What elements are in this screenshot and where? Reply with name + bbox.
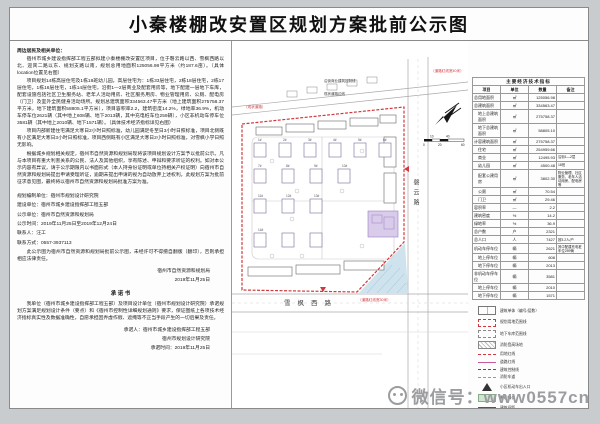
legend-item: 建筑控制线 bbox=[478, 368, 585, 373]
contact-info-line: 公示时间：2019年11月25日至2019年12月24日 bbox=[17, 222, 224, 229]
notice-paragraph-location: 宿州市城乡建设指挥部工程五部拟建小秦楼棚改安置区项目，位于磬云路以西、雪枫西路以… bbox=[17, 57, 224, 78]
building-number-labels: 1#2#3#4#5#6#7#8#9#10#11#12#13#14# bbox=[258, 138, 387, 232]
issuer-name: 宿州市自然资源和规划局 bbox=[17, 269, 210, 276]
indicator-row: 总用地面积㎡125056.98 bbox=[473, 94, 585, 102]
dash-legend-symbol bbox=[478, 377, 496, 378]
indicator-row: 绿地率%36.9 bbox=[473, 220, 585, 228]
commitment-letter: 承 诺 书 我单位（宿州市城乡建设指挥部工程五部）及项目设计单位（宿州市规划设计… bbox=[17, 291, 224, 353]
indicator-row: 门卫㎡29.46 bbox=[473, 196, 585, 204]
indicator-row: 地下停车位辆1571 bbox=[473, 292, 585, 300]
commitment-signature-block: 承诺人：宿州市城乡建设指挥部工程五部 宿州市规划设计研究院 承诺时间：2019年… bbox=[17, 328, 224, 353]
notice-text-column: 周边居民及相关单位： 宿州市城乡建设指挥部工程五部拟建小秦楼棚改安置区项目，位于… bbox=[10, 41, 232, 408]
indicator-row: 地上停车位辆608 bbox=[473, 254, 585, 262]
commitment-signer-2: 宿州市规划设计研究院 bbox=[17, 337, 210, 344]
indicator-row: 容积率—2.2 bbox=[473, 204, 585, 212]
red-dash-legend-symbol bbox=[478, 354, 496, 355]
road-edge-note: 现状道路边线 bbox=[324, 92, 345, 96]
notice-disclaimer: 此公示图为宿州市自然资源和规划局批前公示图，未经许可不得擅自翻版（翻印），否则承… bbox=[17, 250, 224, 264]
hatch-rect-legend-symbol bbox=[478, 341, 496, 349]
svg-text:20: 20 bbox=[438, 143, 442, 147]
contact-info-line: 联系方式：0557-3937113 bbox=[17, 241, 224, 248]
wechat-badge-icon bbox=[388, 386, 407, 405]
legend-item: 用地红线 bbox=[478, 352, 585, 357]
indicator-row: 商业㎡12495.93沿街1—2层 bbox=[473, 154, 585, 162]
issuer-signature-block: 宿州市自然资源和规划局 2019年11月25日 bbox=[17, 269, 224, 285]
svg-text:60: 60 bbox=[461, 143, 465, 147]
svg-text:10#: 10# bbox=[342, 164, 348, 168]
road-name-right: 磬云路 bbox=[411, 179, 420, 209]
svg-text:1#: 1# bbox=[258, 138, 262, 142]
table-header-cell: 数量 bbox=[529, 86, 557, 94]
indicator-row: 住宅㎡254959.66 bbox=[473, 146, 585, 154]
indicator-row: 机动车停车位辆2621其中配建充电桩车位259辆 bbox=[473, 244, 585, 254]
redline-width-note-bottom: （道路红线宽30米） bbox=[358, 298, 391, 302]
svg-text:4#: 4# bbox=[333, 138, 337, 142]
scale-bar: 0 10 20 40 60 bbox=[423, 135, 465, 148]
dashdot-legend-symbol bbox=[478, 369, 496, 370]
svg-text:10: 10 bbox=[430, 135, 434, 139]
internal-roads bbox=[252, 137, 394, 259]
existing-road-note: （现状道路） bbox=[244, 105, 266, 109]
indicators-column: 主要经济技术指标 项目单位数量备注 总用地面积㎡125056.98总建筑面积㎡3… bbox=[468, 41, 588, 408]
kindergarten-building bbox=[368, 211, 398, 237]
indicator-row: 非机动车停车位辆3581 bbox=[473, 270, 585, 284]
commitment-date: 承诺时间：2019年11月25日 bbox=[17, 346, 210, 353]
economic-indicators-table: 主要经济技术指标 项目单位数量备注 总用地面积㎡125056.98总建筑面积㎡3… bbox=[472, 77, 585, 300]
svg-text:13#: 13# bbox=[314, 194, 320, 198]
contact-info-line: 规划编制单位：宿州市规划设计研究院 bbox=[17, 194, 224, 201]
notice-paragraph-sunlight: 项目内部新建住宅满足大寒日2小时日照标准，幼儿园满足冬至日3小时日照标准，项目北… bbox=[17, 129, 224, 150]
svg-text:14#: 14# bbox=[258, 228, 264, 232]
site-plan-drawing: 1#2#3#4#5#6#7#8#9#10#11#12#13#14# 0 10 2… bbox=[232, 41, 468, 408]
indicator-row: 地下停车位辆2013 bbox=[473, 262, 585, 270]
notice-paragraph-indicators: 项目规划14栋高层住宅及1栋18班幼儿园，高层住宅为：1栋33层住宅，2栋18层… bbox=[17, 79, 224, 128]
site-plan-map: 1#2#3#4#5#6#7#8#9#10#11#12#13#14# 0 10 2… bbox=[232, 41, 468, 408]
legend-item: 规划用地范围线 bbox=[478, 319, 585, 327]
indicator-row: 幼儿园㎡4500.4818班 bbox=[473, 162, 585, 170]
legend-item: 消防登高场地 bbox=[478, 341, 585, 349]
indicator-row: 建筑密度%14.2 bbox=[473, 212, 585, 220]
table-header-cell: 备注 bbox=[557, 86, 585, 94]
contact-info-line: 联系人：汪工 bbox=[17, 231, 224, 238]
svg-text:12#: 12# bbox=[286, 194, 292, 198]
svg-text:2#: 2# bbox=[283, 138, 287, 142]
legend-item: 消防车道 bbox=[478, 375, 585, 380]
watermark-text: 微信号：www0557cn bbox=[412, 383, 590, 408]
page-title: 小秦楼棚改安置区规划方案批前公示图 bbox=[129, 11, 469, 37]
commitment-body: 我单位（宿州市城乡建设指挥部工程五部）及项目设计单位（宿州市规划设计研究院）承诺… bbox=[17, 302, 224, 323]
svg-text:40: 40 bbox=[446, 135, 450, 139]
table-title: 主要经济技术指标 bbox=[473, 78, 585, 86]
svg-text:9#: 9# bbox=[314, 164, 318, 168]
svg-text:6#: 6# bbox=[383, 138, 387, 142]
svg-text:5#: 5# bbox=[358, 138, 362, 142]
notice-sheet: 小秦楼棚改安置区规划方案批前公示图 周边居民及相关单位： 宿州市城乡建设指挥部工… bbox=[9, 7, 589, 409]
redline-width-note-right: （道路红线宽40米） bbox=[431, 69, 465, 73]
dash-rect-legend-symbol bbox=[478, 330, 496, 338]
indicator-row: 总建筑面积㎡334563.47 bbox=[473, 102, 585, 110]
issue-date: 2019年11月25日 bbox=[17, 278, 210, 285]
notice-paragraph-procedure: 根据城乡规划相关规定，宿州市自然资源和规划局现将该项目规划设计方案予以批前公示。… bbox=[17, 152, 224, 187]
commercial-control-line-note: 沿街商业建筑控制线 bbox=[324, 79, 356, 83]
svg-text:8#: 8# bbox=[286, 164, 290, 168]
contact-info-block: 规划编制单位：宿州市规划设计研究院建设单位：宿州市城乡建设指挥部工程五部公示单位… bbox=[17, 194, 224, 248]
indicator-row: 地上停车位辆2010 bbox=[473, 284, 585, 292]
legend-item: 建筑单体（编号/层数） bbox=[478, 306, 585, 315]
indicator-row: 计容建筑面积㎡275758.37 bbox=[473, 138, 585, 146]
north-arrow-icon bbox=[435, 103, 461, 125]
indicator-row: 地下总建筑面积㎡58805.10 bbox=[473, 124, 585, 138]
content-area: 周边居民及相关单位： 宿州市城乡建设指挥部工程五部拟建小秦楼棚改安置区项目，位于… bbox=[10, 41, 588, 408]
road-name-bottom: 雪枫西路 bbox=[284, 297, 338, 307]
table-header-row: 项目单位数量备注 bbox=[473, 86, 585, 94]
contact-info-line: 建设单位：宿州市城乡建设指挥部工程五部 bbox=[17, 203, 224, 210]
pink-line-legend-symbol bbox=[478, 362, 496, 363]
red-rect-legend-symbol bbox=[478, 319, 496, 327]
building-legend-symbol bbox=[478, 306, 496, 315]
legend-item: 道路红线 bbox=[478, 360, 585, 365]
commitment-title: 承 诺 书 bbox=[17, 291, 224, 299]
commitment-signer-1: 承诺人：宿州市城乡建设指挥部工程五部 bbox=[17, 328, 210, 335]
indicator-row: 公厕㎡70.54 bbox=[473, 188, 585, 196]
title-bar: 小秦楼棚改安置区规划方案批前公示图 bbox=[10, 8, 588, 41]
svg-text:0: 0 bbox=[423, 143, 425, 147]
road-lines bbox=[232, 57, 468, 408]
contact-info-line: 公示单位：宿州市自然资源和规划局 bbox=[17, 213, 224, 220]
table-header-cell: 项目 bbox=[473, 86, 501, 94]
svg-text:3#: 3# bbox=[308, 138, 312, 142]
notice-salutation: 周边居民及相关单位： bbox=[17, 49, 224, 56]
table-header-cell: 单位 bbox=[501, 86, 529, 94]
watermark: 微信号：www0557cn bbox=[388, 383, 590, 408]
legend-item: 地下车库范围线 bbox=[478, 330, 585, 338]
svg-text:11#: 11# bbox=[258, 194, 263, 198]
svg-text:7#: 7# bbox=[258, 164, 262, 168]
indicator-row: 总人口人7427按3.2人/户 bbox=[473, 236, 585, 244]
indicator-row: 地上总建筑面积㎡275758.37 bbox=[473, 110, 585, 124]
indicator-row: 配套公建用房㎡3802.30物业管理、社区服务、老年人活动用房、配电房等 bbox=[473, 170, 585, 188]
indicator-row: 总户数户2321 bbox=[473, 228, 585, 236]
